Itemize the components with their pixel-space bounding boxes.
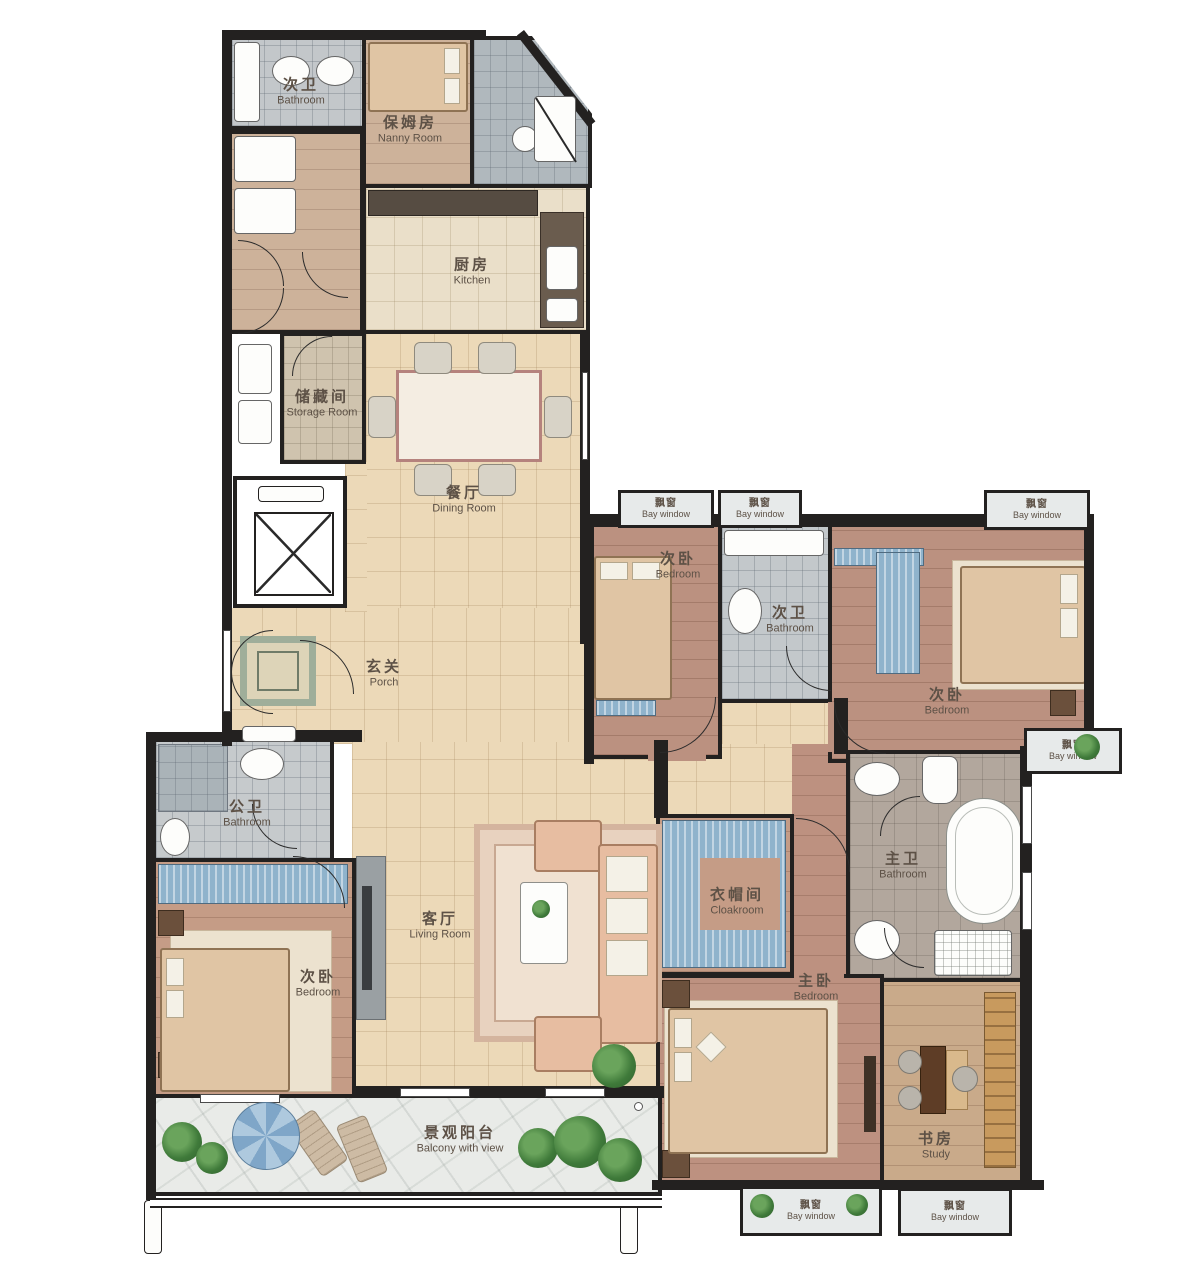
sofa-cushion — [606, 856, 648, 892]
nightstand — [1050, 690, 1076, 716]
dining-table — [396, 370, 542, 462]
bay-window-4: 飘窗Bay window — [1024, 728, 1122, 774]
dining-chair — [414, 342, 452, 374]
bay-label-en: Bay window — [787, 1212, 835, 1221]
kitchen-counter — [368, 190, 538, 216]
bookshelf — [984, 992, 1016, 1168]
pillow — [632, 562, 660, 580]
window — [1022, 786, 1032, 844]
cloakroom-floor — [700, 858, 780, 930]
entry-door-gap — [223, 630, 231, 712]
window — [400, 1088, 470, 1097]
wardrobe — [876, 552, 920, 674]
toilet — [160, 818, 190, 856]
window — [582, 372, 588, 460]
nightstand — [662, 980, 690, 1008]
window — [545, 1088, 605, 1097]
dining-chair — [478, 464, 516, 496]
bay-label-zh: 飘窗 — [749, 499, 771, 510]
tv — [864, 1056, 876, 1132]
nightstand — [158, 910, 184, 936]
bay-window-1: 飘窗Bay window — [618, 490, 714, 528]
pillow — [444, 48, 460, 74]
pillow — [166, 990, 184, 1018]
pillow — [444, 78, 460, 104]
bay-window-3: 飘窗Bay window — [984, 490, 1090, 530]
dining-chair — [414, 464, 452, 496]
bay-label-en: Bay window — [931, 1213, 979, 1222]
pillow — [674, 1052, 692, 1082]
washer-column — [234, 42, 260, 122]
ac-platform — [238, 344, 272, 394]
bay-label-zh: 飘窗 — [944, 1202, 966, 1213]
umbrella — [232, 1102, 300, 1170]
pillow — [674, 1018, 692, 1048]
plant — [1074, 734, 1100, 760]
small-wall-box — [242, 726, 296, 742]
vent-diagonal-icon — [535, 97, 577, 163]
armchair — [534, 820, 602, 872]
floor-drain — [634, 1102, 643, 1111]
nightstand — [662, 1150, 690, 1178]
plant — [846, 1194, 868, 1216]
shower — [158, 744, 228, 812]
dining-chair — [368, 396, 396, 438]
pillow — [1060, 608, 1078, 638]
bathtub-inner — [955, 807, 1013, 915]
kitchen-sink — [546, 246, 578, 290]
dining-chair — [544, 396, 572, 438]
sink — [240, 748, 284, 780]
pillow — [1060, 574, 1078, 604]
wall — [222, 30, 232, 334]
desk — [920, 1046, 946, 1114]
railing-post — [144, 1200, 162, 1254]
wall — [584, 514, 594, 764]
floor-plan: 飘窗Bay window 飘窗Bay window 飘窗Bay window 飘… — [0, 0, 1188, 1280]
railing-post — [620, 1200, 638, 1254]
elevator-car — [254, 512, 334, 596]
bed — [668, 1008, 828, 1154]
plant — [196, 1142, 228, 1174]
desk-chair — [952, 1066, 978, 1092]
bay-label-en: Bay window — [1013, 511, 1061, 520]
bay-label-zh: 飘窗 — [1026, 500, 1048, 511]
coffee-table — [520, 882, 568, 964]
toilet — [728, 588, 762, 634]
washer — [234, 136, 296, 182]
vanity-counter — [724, 530, 824, 556]
elevator-x-icon — [256, 514, 331, 593]
bay-label-en: Bay window — [736, 510, 784, 519]
wall — [352, 1086, 664, 1098]
ac-platform — [238, 400, 272, 444]
balcony-railing — [150, 1198, 662, 1208]
wall — [146, 732, 156, 1200]
bay-window-6: 飘窗Bay window — [898, 1188, 1012, 1236]
door-opening — [794, 972, 844, 982]
dining-chair — [478, 342, 516, 374]
elevator-door — [258, 486, 324, 502]
window — [1022, 872, 1032, 930]
toilet — [922, 756, 958, 804]
wall — [1020, 976, 1032, 1190]
wall — [222, 328, 232, 612]
stove — [546, 298, 578, 322]
sofa-cushion — [606, 940, 648, 976]
vent-shaft — [534, 96, 576, 162]
plant — [598, 1138, 642, 1182]
plant — [532, 900, 550, 918]
bay-label-zh: 飘窗 — [655, 499, 677, 510]
pillow — [600, 562, 628, 580]
sink — [854, 762, 900, 796]
plant — [750, 1194, 774, 1218]
bay-label-zh: 飘窗 — [800, 1201, 822, 1212]
bay-window-2: 飘窗Bay window — [718, 490, 802, 528]
sofa-cushion — [606, 898, 648, 934]
tv — [362, 886, 372, 990]
sink — [272, 56, 310, 86]
wall — [1020, 746, 1032, 986]
bathtub — [946, 798, 1022, 924]
hallway-floor — [345, 462, 367, 612]
plant — [518, 1128, 558, 1168]
sink — [316, 56, 354, 86]
bay-label-en: Bay window — [642, 510, 690, 519]
desk-chair — [898, 1086, 922, 1110]
pillow — [166, 958, 184, 986]
plant — [592, 1044, 636, 1088]
wall — [222, 30, 486, 40]
desk-chair — [898, 1050, 922, 1074]
bench — [596, 700, 656, 716]
dryer — [234, 188, 296, 234]
shower — [934, 930, 1012, 976]
